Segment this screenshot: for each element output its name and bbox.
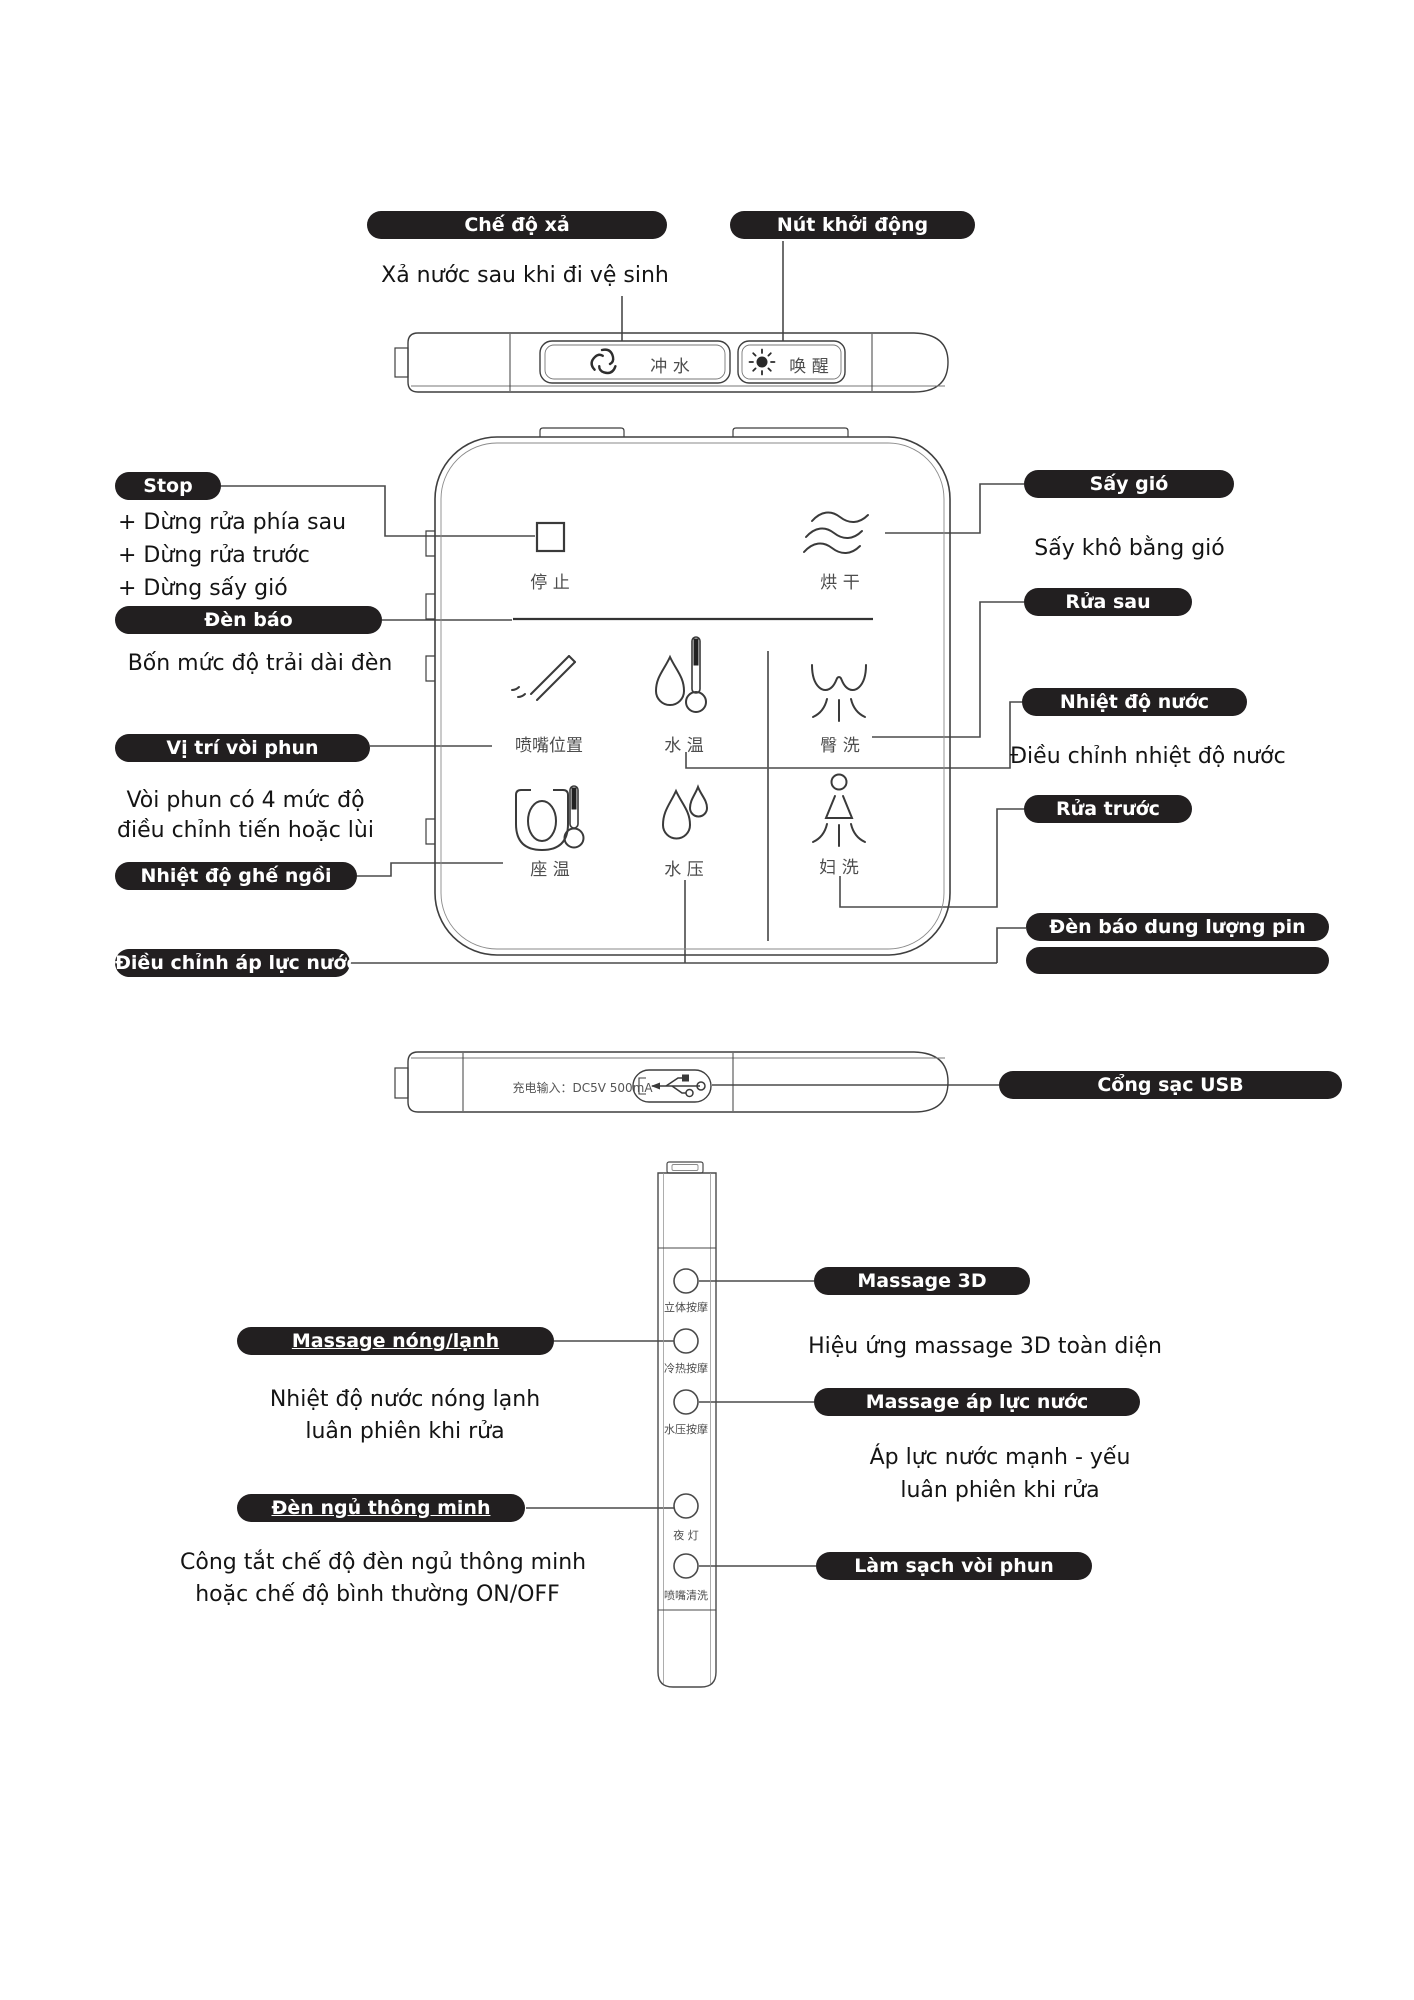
seat-temp-icon — [516, 786, 584, 850]
pressure-massage-description-line: Áp lực nước mạnh - yếu — [840, 1441, 1160, 1474]
stop-icon — [537, 523, 564, 551]
rear-wash-badge: Rửa sau — [1024, 588, 1192, 616]
night-light-button — [674, 1494, 698, 1518]
nozzle-position-label: 喷嘴位置 — [504, 731, 594, 756]
massage-3d-badge: Massage 3D — [814, 1267, 1030, 1295]
nozzle-description-line: Vòi phun có 4 mức độ — [98, 786, 393, 816]
battery-indicator-badge-extension — [1026, 947, 1329, 974]
wake-sun-icon — [750, 350, 775, 375]
stop-badge: Stop — [115, 472, 221, 500]
water-pressure-adjust-badge: Điều chỉnh áp lực nước — [115, 949, 350, 977]
night-light-label: 夜 灯 — [654, 1527, 718, 1543]
rear-wash-icon — [812, 665, 866, 721]
stop-label: 停 止 — [505, 568, 595, 593]
stop-description-line: + Dừng rửa trước — [118, 539, 346, 572]
dry-description: Sấy khô bằng gió — [1012, 536, 1247, 561]
night-light-description-line: Công tắt chế độ đèn ngủ thông minh — [180, 1547, 575, 1579]
hot-cold-description-line: Nhiệt độ nước nóng lạnh — [250, 1384, 560, 1416]
seat-temp-badge: Nhiệt độ ghế ngồi — [115, 862, 357, 890]
dry-badge: Sấy gió — [1024, 470, 1234, 498]
nozzle-description: Vòi phun có 4 mức độ điều chỉnh tiến hoặ… — [98, 786, 393, 846]
nozzle-position-badge: Vị trí vòi phun — [115, 734, 370, 762]
nozzle-clean-badge: Làm sạch vòi phun — [816, 1552, 1092, 1580]
night-light-badge: Đèn ngủ thông minh — [237, 1494, 525, 1522]
seat-temp-label: 座 温 — [505, 855, 595, 880]
pressure-massage-description-line: luân phiên khi rửa — [840, 1474, 1160, 1507]
usb-port-badge: Cổng sạc USB — [999, 1071, 1342, 1099]
water-temp-label: 水 温 — [639, 731, 729, 756]
stop-description: + Dừng rửa phía sau + Dừng rửa trước + D… — [118, 506, 346, 605]
diagram-linework — [0, 0, 1414, 2000]
stop-description-line: + Dừng rửa phía sau — [118, 506, 346, 539]
usb-device — [395, 1052, 948, 1112]
top-device-left-tab — [395, 348, 408, 377]
battery-indicator-badge: Đèn báo dung lượng pin — [1026, 913, 1329, 941]
feminine-wash-label: 妇 洗 — [794, 853, 884, 878]
nozzle-clean-label: 喷嘴清洗 — [654, 1587, 718, 1603]
indicator-description: Bốn mức độ trải dài đèn — [110, 651, 410, 676]
night-light-description: Công tắt chế độ đèn ngủ thông minh hoặc … — [180, 1547, 575, 1611]
flush-swirl-icon — [589, 350, 616, 377]
manual-page: Chế độ xả Nút khởi động Xả nước sau khi … — [0, 0, 1414, 2000]
usb-device-left-tab — [395, 1068, 408, 1098]
flush-button-label: 冲 水 — [625, 352, 715, 377]
rear-wash-label: 臀 洗 — [795, 731, 885, 756]
front-wash-badge: Rửa trước — [1024, 795, 1192, 823]
dry-label: 烘 干 — [795, 568, 885, 593]
night-light-description-line: hoặc chế độ bình thường ON/OFF — [180, 1579, 575, 1611]
start-button-badge: Nút khởi động — [730, 211, 975, 239]
water-temp-icon — [656, 637, 706, 712]
hot-cold-massage-badge: Massage nóng/lạnh — [237, 1327, 554, 1355]
feminine-wash-icon — [813, 775, 865, 847]
water-pressure-icon — [663, 787, 707, 839]
charge-input-label: 充电输入：DC5V 500mA — [500, 1079, 665, 1096]
flush-description: Xả nước sau khi đi vệ sinh — [360, 263, 690, 288]
nozzle-description-line: điều chỉnh tiến hoặc lùi — [98, 816, 393, 846]
hot-cold-description: Nhiệt độ nước nóng lạnh luân phiên khi r… — [250, 1384, 560, 1448]
indicator-badge: Đèn báo — [115, 606, 382, 634]
massage-3d-label: 立体按摩 — [654, 1299, 718, 1315]
nozzle-position-icon — [512, 656, 575, 700]
dry-icon — [804, 512, 868, 553]
massage-3d-description: Hiệu ứng massage 3D toàn diện — [770, 1334, 1200, 1359]
flush-mode-badge: Chế độ xả — [367, 211, 667, 239]
pressure-massage-description: Áp lực nước mạnh - yếu luân phiên khi rử… — [840, 1441, 1160, 1507]
wake-button-label: 唤 醒 — [776, 352, 842, 377]
hot-cold-massage-button — [674, 1329, 698, 1353]
hot-cold-description-line: luân phiên khi rửa — [250, 1416, 560, 1448]
stop-description-line: + Dừng sấy gió — [118, 572, 346, 605]
hot-cold-massage-label: 冷热按摩 — [654, 1360, 718, 1376]
nozzle-clean-button — [674, 1554, 698, 1578]
pressure-massage-badge: Massage áp lực nước — [814, 1388, 1140, 1416]
massage-3d-button — [674, 1269, 698, 1293]
water-temp-badge: Nhiệt độ nước — [1022, 688, 1247, 716]
pressure-massage-button — [674, 1390, 698, 1414]
water-temp-description: Điều chỉnh nhiệt độ nước — [1010, 744, 1260, 769]
pressure-massage-label: 水压按摩 — [654, 1421, 718, 1437]
water-pressure-label: 水 压 — [639, 855, 729, 880]
